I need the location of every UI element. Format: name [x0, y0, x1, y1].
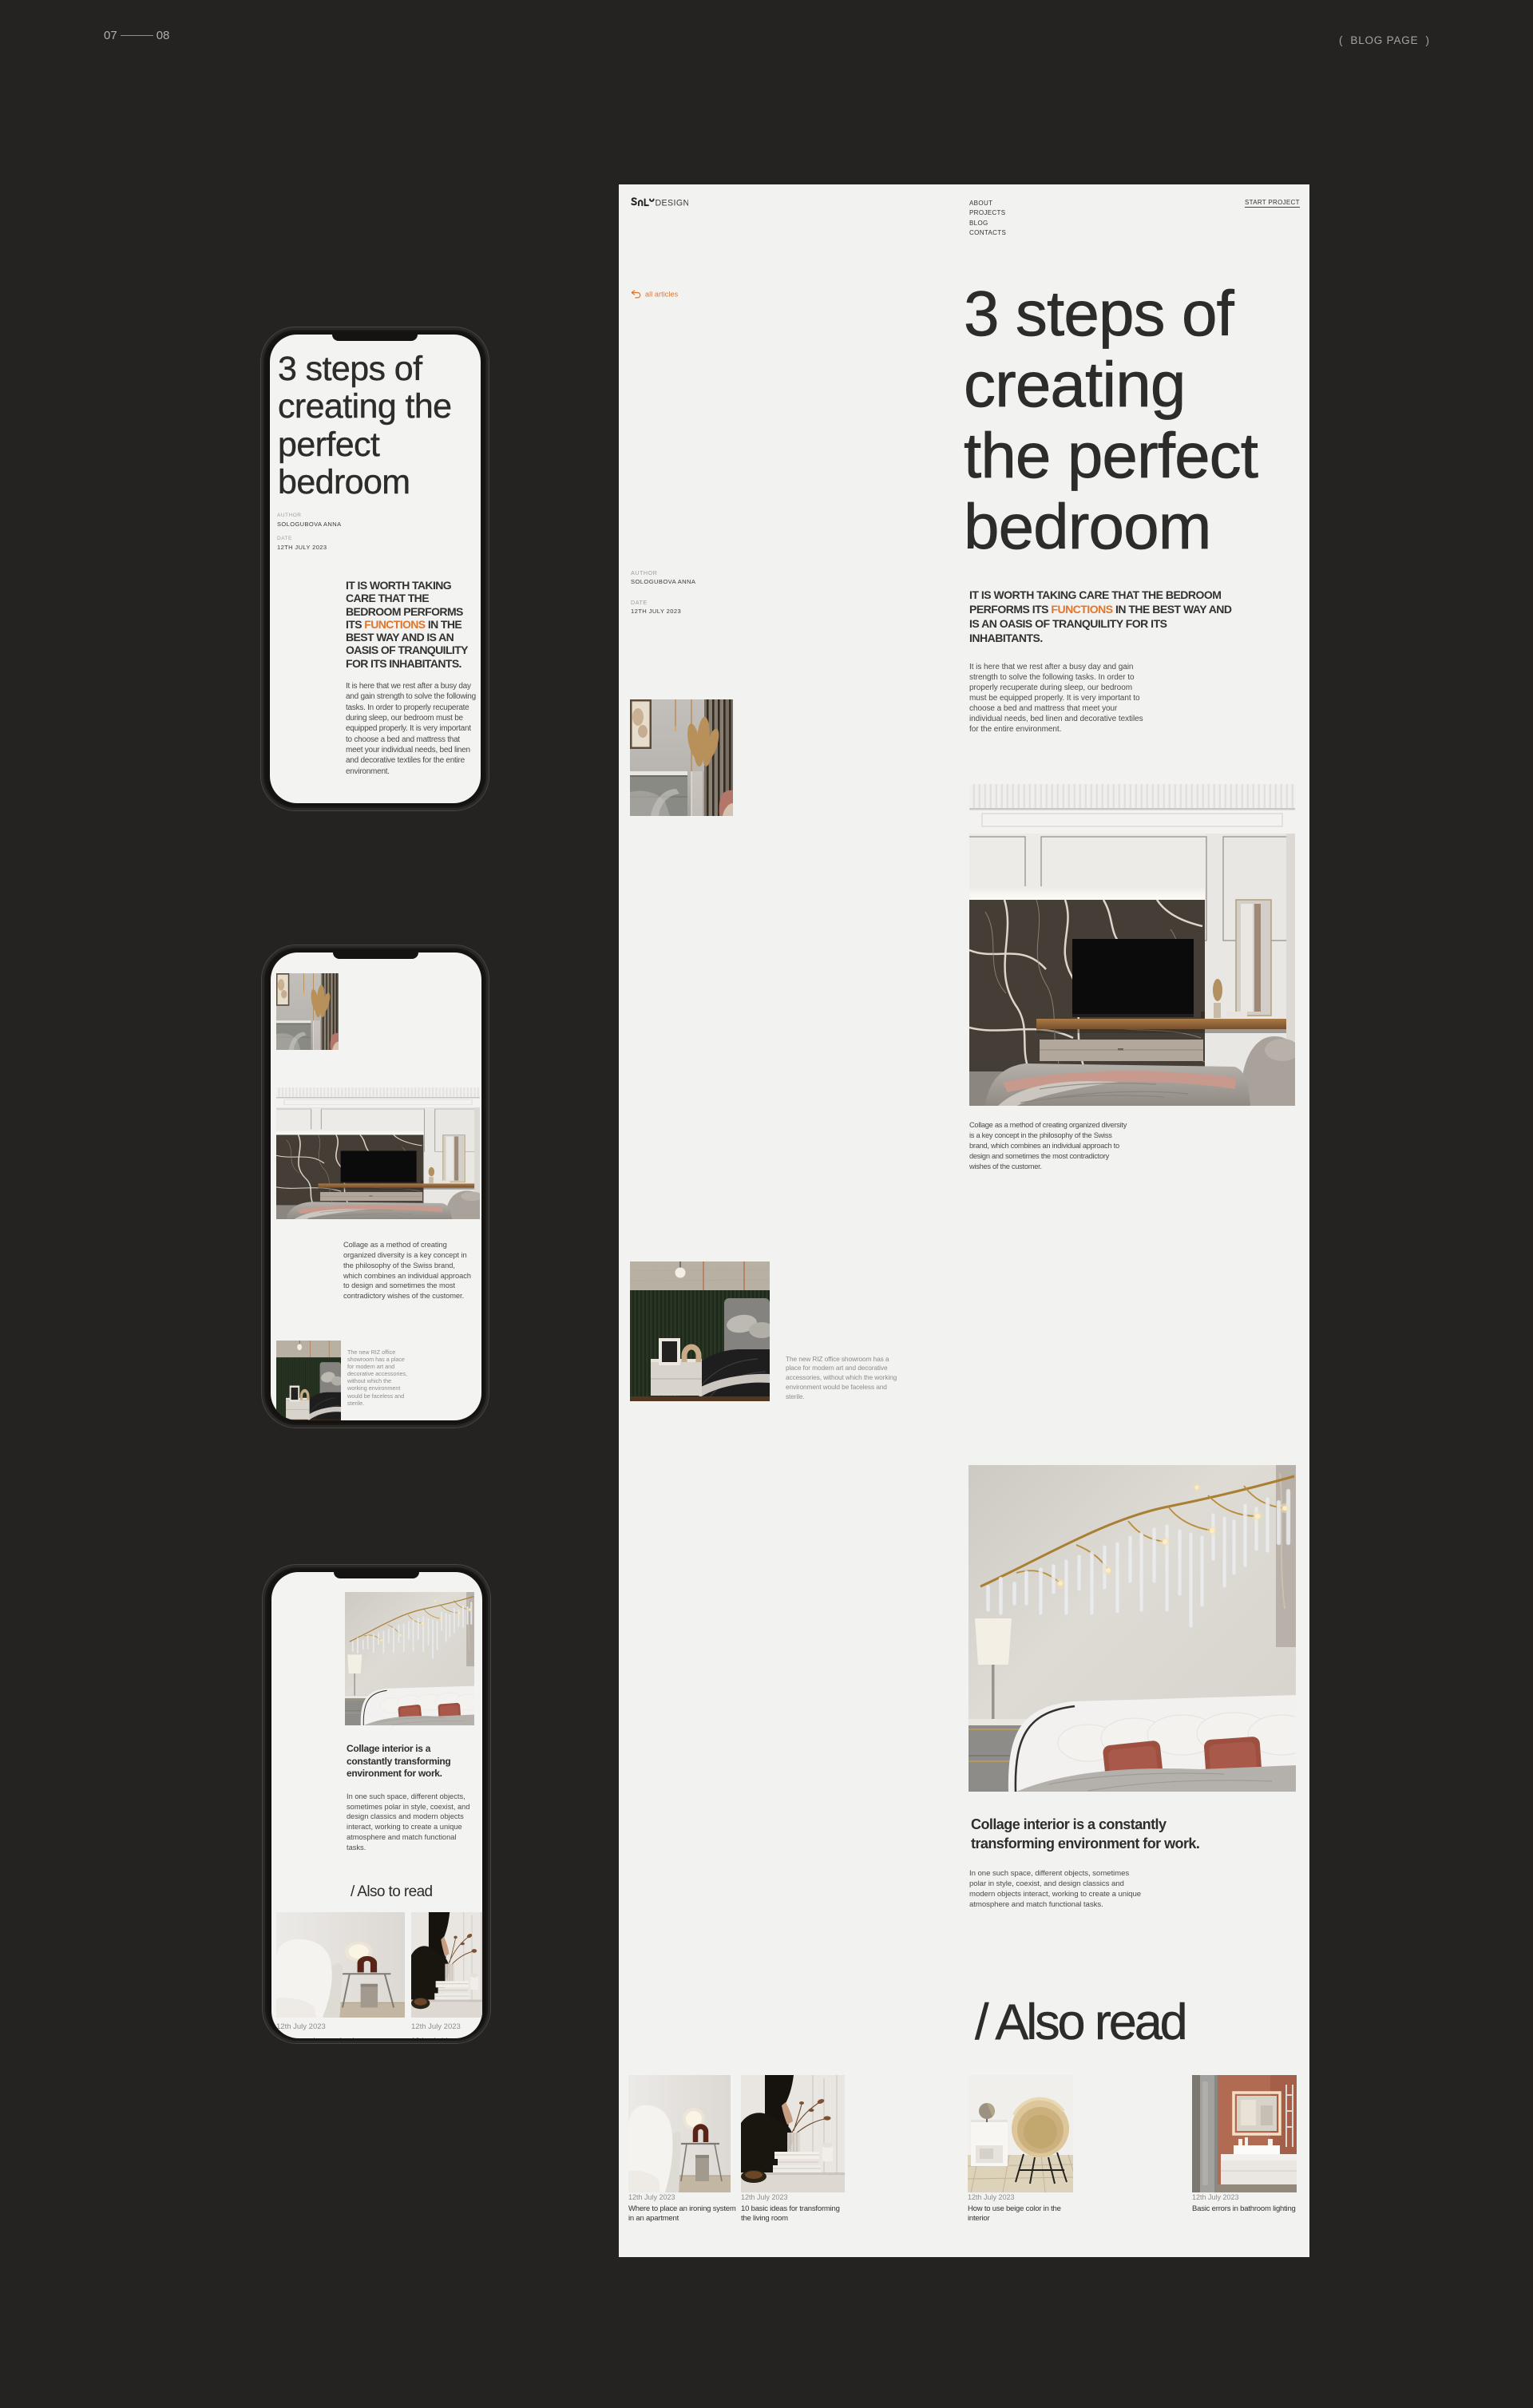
- svg-text:DESIGN: DESIGN: [656, 198, 689, 207]
